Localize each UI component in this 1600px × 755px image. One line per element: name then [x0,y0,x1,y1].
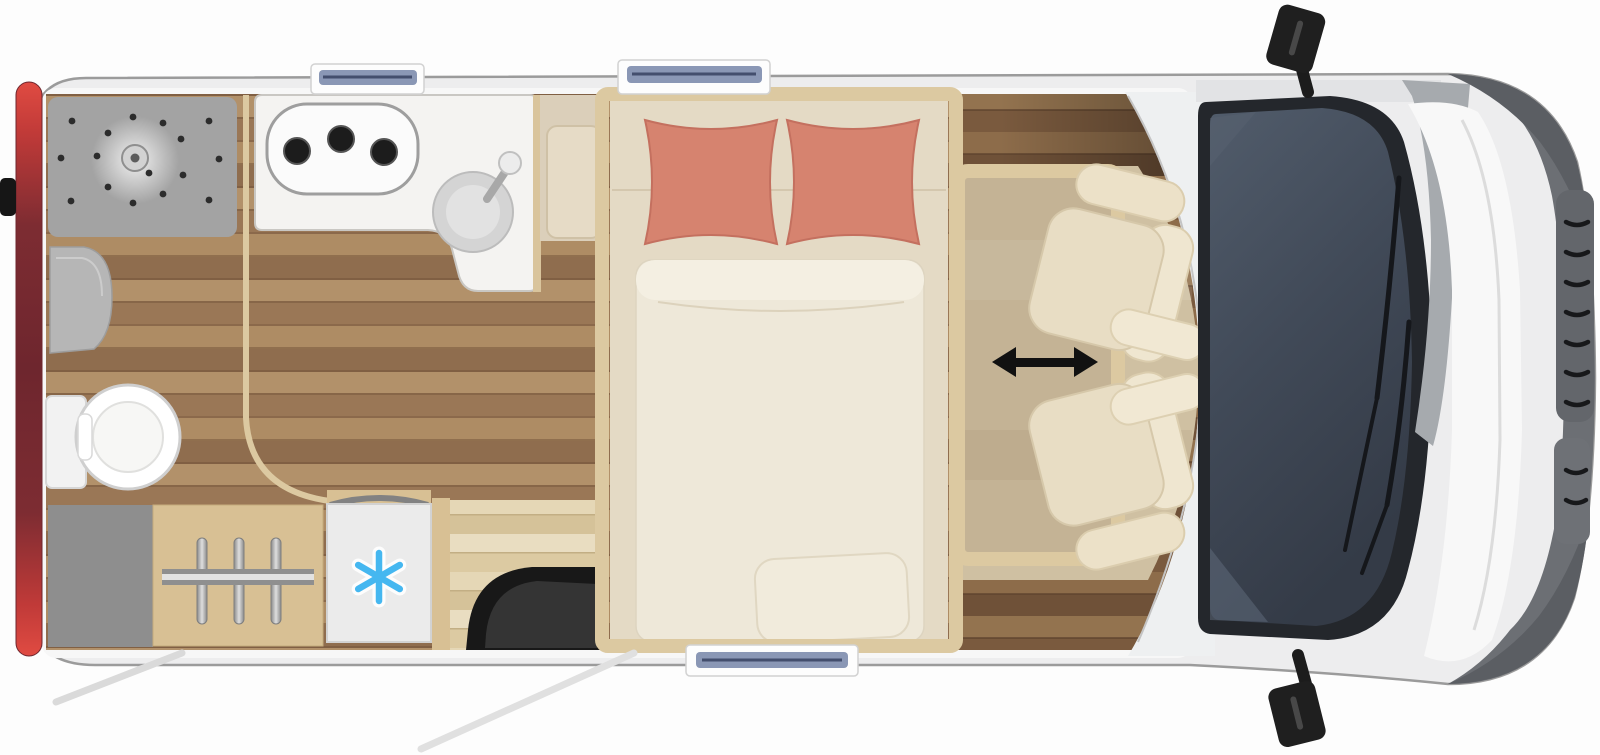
rear-tail-light [16,82,42,656]
hob-burner [371,139,397,165]
hob-burner [284,138,310,164]
storage-row [48,490,450,650]
bed-pillow [787,120,919,244]
door-swing-line [421,653,634,749]
shower-head [122,145,148,171]
fridge-side-panel [432,498,450,650]
counter-divider [533,95,541,292]
bed-pillow [645,120,777,244]
front-grille [1554,190,1594,544]
gray-cabinet [48,505,153,647]
shower-tray [48,97,237,237]
hob [267,104,418,194]
roof-window [618,60,770,94]
door-swing-lines [56,653,634,749]
side-window-bottom [686,645,858,676]
wardrobe [153,505,323,646]
floorplan-canvas [0,0,1600,755]
bed [602,94,956,646]
motorhome-floorplan [0,0,1600,755]
washbasin [50,247,112,353]
wardrobe-rail [162,569,314,585]
duvet-fold [754,552,910,644]
refrigerator [327,490,431,642]
roof-window [311,64,424,94]
rear-marker-tab [0,178,16,216]
toilet [46,385,180,489]
hob-burner [328,126,354,152]
bed-duvet [636,260,924,644]
